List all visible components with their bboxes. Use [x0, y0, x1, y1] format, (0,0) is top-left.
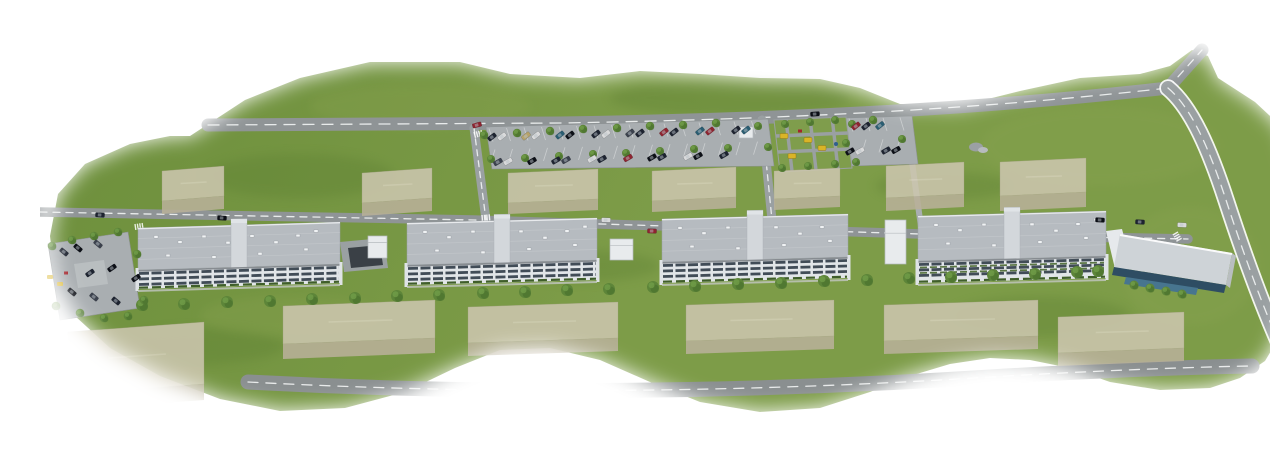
tree-highlight [649, 282, 655, 288]
entrance-kiosk [368, 236, 387, 258]
roof-hatch [1054, 229, 1058, 232]
tree-highlight [580, 126, 584, 130]
tree [76, 309, 85, 318]
roof-hatch [573, 244, 577, 247]
tree-highlight [91, 233, 95, 237]
ghost-roof-ridge [677, 183, 712, 184]
car-glass [98, 213, 102, 216]
tree [114, 228, 123, 237]
play-equipment-yellow [780, 134, 788, 139]
car [810, 111, 819, 116]
tree-highlight [849, 121, 853, 125]
tree [898, 135, 906, 143]
car [217, 215, 226, 220]
ghost-building [468, 302, 618, 356]
roof-hatch [726, 226, 730, 229]
roof-hatch [1076, 223, 1080, 226]
tree [804, 162, 812, 170]
roof-hatch [274, 241, 278, 244]
east-end-wall [848, 255, 851, 280]
tree [68, 236, 77, 245]
ghost-building [886, 162, 964, 211]
car-glass [813, 112, 817, 115]
tree [778, 164, 786, 172]
tree-highlight [765, 144, 769, 148]
west-end-wall [916, 259, 919, 285]
tree-highlight [563, 285, 569, 291]
tree [1071, 266, 1083, 278]
tree [690, 145, 698, 153]
tree-highlight [547, 128, 551, 132]
tree [1162, 287, 1171, 296]
tree [831, 116, 839, 124]
crosswalk-bar [482, 215, 483, 221]
roof-hatch [226, 241, 230, 244]
tree-highlight [435, 290, 441, 296]
tree [561, 284, 573, 296]
tree-highlight [180, 299, 186, 305]
tree-highlight [870, 117, 874, 121]
car [601, 218, 610, 223]
ghost-roof-ridge [909, 179, 942, 180]
entrance-kiosk [610, 239, 633, 260]
ghost-roof-ridge [794, 183, 822, 184]
ghost-building [162, 166, 224, 214]
tree [689, 280, 701, 292]
tree [264, 295, 276, 307]
tree-highlight [134, 251, 138, 255]
tree-highlight [1147, 284, 1152, 289]
tree [842, 139, 850, 147]
tree [133, 250, 142, 259]
tree-highlight [820, 276, 826, 282]
roof-hatch [958, 229, 962, 232]
tree [613, 124, 621, 132]
ghost-roof-ridge [1026, 176, 1062, 177]
east-end-wall [340, 262, 343, 285]
crosswalk-bar [135, 224, 136, 230]
car-glass [650, 229, 654, 232]
roof-hatch [828, 240, 832, 243]
tree-highlight [614, 125, 618, 129]
roof-hatch [435, 249, 439, 252]
car [1135, 219, 1144, 224]
play-equipment-yellow [804, 138, 812, 143]
play-equipment-yellow [818, 146, 826, 151]
roof-hatch [736, 247, 740, 250]
car [647, 229, 656, 234]
tree-highlight [947, 272, 953, 278]
tree-highlight [556, 153, 560, 157]
roof-hatch [296, 234, 300, 237]
tree-highlight [989, 270, 995, 276]
tree-highlight [863, 275, 869, 281]
ghost-building [686, 300, 834, 354]
roof-hatch [934, 224, 938, 227]
tree-highlight [1031, 269, 1037, 275]
tree-highlight [734, 279, 740, 285]
tree-highlight [141, 297, 145, 301]
tree-highlight [1163, 287, 1168, 292]
entrance-kiosk [885, 220, 906, 264]
tree-highlight [77, 310, 81, 314]
tree [903, 272, 915, 284]
tree [945, 271, 957, 283]
roof-hatch [1030, 223, 1034, 226]
tree-highlight [1073, 267, 1079, 273]
car [95, 212, 104, 217]
tree [852, 158, 860, 166]
tree [1092, 265, 1104, 277]
tree-highlight [647, 123, 651, 127]
roof-hatch [202, 235, 206, 238]
stair-core [1004, 207, 1020, 259]
tree-highlight [522, 155, 526, 159]
tree [775, 277, 787, 289]
tree-highlight [101, 315, 105, 319]
roof-hatch [992, 244, 996, 247]
west-end-wall [405, 263, 408, 287]
roof-hatch [178, 241, 182, 244]
tree [724, 144, 732, 152]
tree-highlight [782, 121, 786, 125]
tree-highlight [779, 165, 783, 169]
roof-hatch [1038, 241, 1042, 244]
tree [433, 289, 445, 301]
roof-hatch [982, 223, 986, 226]
tree-highlight [853, 159, 857, 163]
stair-core-cap [494, 215, 510, 219]
tree-highlight [481, 132, 485, 136]
roof-hatch [519, 230, 523, 233]
roof-hatch [166, 254, 170, 257]
stair-core [747, 210, 763, 260]
apartment-block [660, 210, 851, 285]
roof-hatch [471, 230, 475, 233]
crosswalk-bar [484, 215, 485, 221]
rock [978, 147, 988, 153]
tree [647, 281, 659, 293]
roof-hatch [678, 227, 682, 230]
car [1095, 217, 1104, 222]
tree-highlight [905, 273, 911, 279]
ghost-building [508, 169, 598, 214]
tree-highlight [514, 130, 518, 134]
tree [732, 278, 744, 290]
tree [764, 143, 772, 151]
roof-hatch [212, 256, 216, 259]
roof-hatch [258, 252, 262, 255]
roof-hatch [154, 236, 158, 239]
roof-hatch [304, 248, 308, 251]
ghost-roof-ridge [535, 185, 573, 186]
car-glass [1138, 220, 1142, 223]
tree-highlight [1094, 266, 1100, 272]
tree-highlight [266, 296, 272, 302]
ghost-building [283, 300, 435, 359]
stair-core [494, 214, 510, 263]
tree [1146, 284, 1155, 293]
tree [513, 129, 521, 137]
tree [579, 125, 587, 133]
tree-highlight [680, 122, 684, 126]
roof-hatch [820, 226, 824, 229]
tree-highlight [832, 161, 836, 165]
tree-highlight [479, 288, 485, 294]
tree-highlight [393, 291, 399, 297]
tree [987, 269, 999, 281]
roof-hatch [798, 232, 802, 235]
ghost-building [774, 168, 840, 210]
roof-hatch [314, 230, 318, 233]
tree [546, 127, 554, 135]
ghost-building [1058, 312, 1184, 366]
roof-hatch [423, 231, 427, 234]
play-equipment-blue [834, 142, 838, 146]
tree-highlight [657, 148, 661, 152]
tree-highlight [605, 284, 611, 290]
roof-hatch [946, 242, 950, 245]
tree-highlight [308, 294, 314, 300]
roof-hatch [250, 235, 254, 238]
car-glass [1098, 218, 1102, 221]
stair-core [231, 219, 247, 268]
apartment-block [405, 214, 600, 287]
stair-core-cap [231, 219, 247, 223]
roof-hatch [481, 251, 485, 254]
tree [391, 290, 403, 302]
stair-core-cap [747, 211, 763, 215]
car [1177, 222, 1186, 227]
west-end-wall [660, 260, 663, 285]
tree [178, 298, 190, 310]
tree [1130, 281, 1139, 290]
roof-hatch [565, 230, 569, 233]
tree [861, 274, 873, 286]
tree [100, 314, 109, 323]
tree-highlight [521, 287, 527, 293]
tree-highlight [488, 156, 492, 160]
crosswalk-bar [487, 215, 488, 221]
roof-hatch [690, 245, 694, 248]
tree [754, 122, 762, 130]
roof-hatch [447, 236, 451, 239]
tree-highlight [899, 136, 903, 140]
tree-highlight [115, 229, 119, 233]
tree [712, 119, 720, 127]
east-end-wall [1106, 254, 1109, 280]
tree [306, 293, 318, 305]
tree [480, 131, 488, 139]
ghost-building [884, 300, 1038, 354]
apartment-block [136, 219, 343, 291]
roof-hatch [583, 225, 587, 228]
tree [90, 232, 99, 241]
tree [646, 122, 654, 130]
tree [124, 312, 133, 321]
tree-highlight [832, 117, 836, 121]
roof-hatch [702, 232, 706, 235]
tree [140, 296, 149, 305]
play-equipment-red [798, 130, 802, 133]
east-end-wall [597, 258, 600, 282]
architectural-render: Aerial 3D architectural rendering of a l… [40, 16, 1270, 451]
tree-highlight [69, 237, 73, 241]
tree [869, 116, 877, 124]
tree-highlight [623, 150, 627, 154]
tree [781, 120, 789, 128]
tree [519, 286, 531, 298]
site-plan-svg [40, 16, 1270, 451]
tree-highlight [1131, 281, 1136, 286]
tree-highlight [777, 278, 783, 284]
tree-highlight [590, 151, 594, 155]
play-equipment-yellow [788, 154, 796, 159]
tree-highlight [843, 140, 847, 144]
tree [349, 292, 361, 304]
tree-highlight [125, 313, 129, 317]
tree [221, 296, 233, 308]
tree-highlight [351, 293, 357, 299]
tree [477, 287, 489, 299]
tree-highlight [725, 145, 729, 149]
roof-hatch [774, 226, 778, 229]
tree-highlight [755, 123, 759, 127]
tree [806, 118, 814, 126]
ghost-roof [283, 300, 435, 344]
tree-highlight [1179, 290, 1184, 295]
tree [1029, 268, 1041, 280]
tree-highlight [691, 146, 695, 150]
car-glass [1180, 223, 1184, 226]
car-glass [220, 216, 224, 219]
tree [603, 283, 615, 295]
roof-hatch [782, 244, 786, 247]
ghost-building [362, 168, 432, 216]
ghost-building [1000, 158, 1086, 211]
stair-core-cap [1004, 208, 1020, 212]
roof-hatch [527, 248, 531, 251]
roof-hatch [543, 236, 547, 239]
tree [1178, 290, 1187, 299]
car-glass [604, 218, 608, 221]
ghost-building [652, 167, 736, 212]
tree-highlight [713, 120, 717, 124]
tree [831, 160, 839, 168]
tree-highlight [223, 297, 229, 303]
tree [679, 121, 687, 129]
tree [818, 275, 830, 287]
tree-highlight [807, 119, 811, 123]
play-equipment-red [64, 272, 68, 275]
roof-hatch [1084, 237, 1088, 240]
crosswalk-bar [489, 214, 490, 220]
tree-highlight [691, 281, 697, 287]
tree-highlight [805, 163, 809, 167]
